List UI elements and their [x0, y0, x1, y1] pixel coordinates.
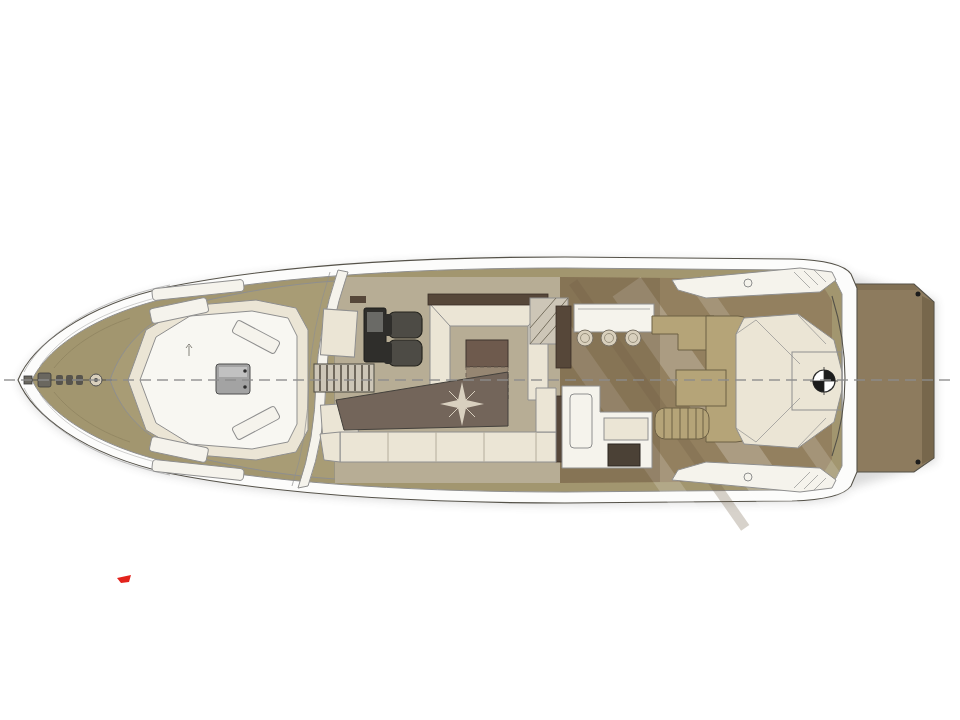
yacht-deck-plan-drawing [0, 0, 960, 720]
helm-seat [384, 312, 422, 338]
platform-screw-icon [916, 292, 921, 297]
platform-screw-icon [916, 460, 921, 465]
side-bench [320, 309, 357, 357]
galley-worktop [604, 418, 648, 440]
galley-counter [574, 304, 654, 332]
aft-sunpad-slats [655, 408, 709, 439]
roof-tab [350, 296, 366, 303]
red-mark [117, 575, 131, 583]
yacht-deck-plan-page [0, 0, 960, 720]
galley-appliance [608, 444, 640, 466]
dinette-table [466, 340, 508, 367]
companionway-stairs [314, 364, 374, 392]
bar-stools [577, 330, 641, 346]
helm-seat [384, 340, 422, 366]
